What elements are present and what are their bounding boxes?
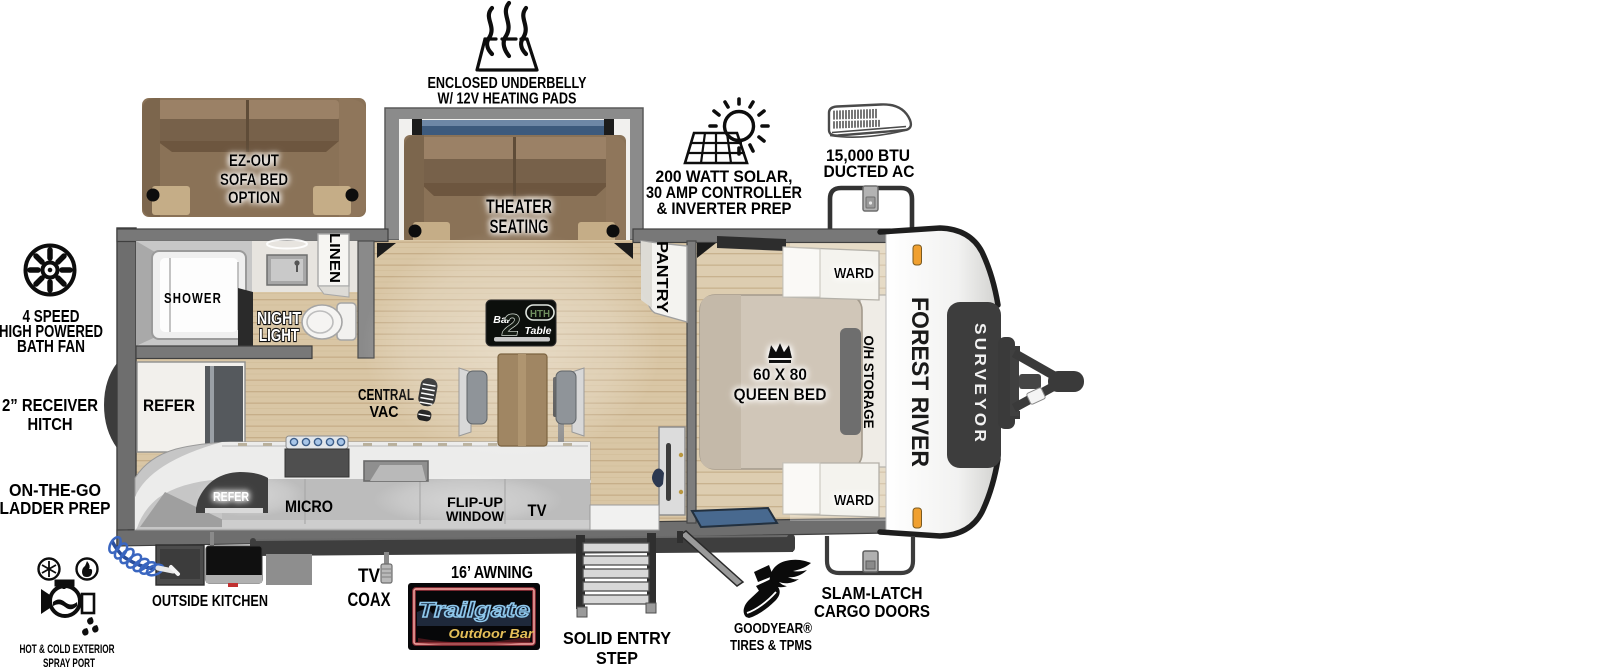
svg-text:Trailgate: Trailgate — [418, 599, 530, 622]
svg-text:HTH: HTH — [530, 309, 550, 320]
svg-text:OUTSIDE KITCHEN: OUTSIDE KITCHEN — [152, 593, 268, 610]
svg-text:Outdoor Bar: Outdoor Bar — [449, 626, 535, 641]
svg-text:EZ-OUT: EZ-OUT — [229, 151, 279, 170]
svg-text:SOLID ENTRY: SOLID ENTRY — [563, 628, 671, 648]
svg-text:ENCLOSED UNDERBELLY: ENCLOSED UNDERBELLY — [428, 75, 588, 92]
svg-text:LADDER PREP: LADDER PREP — [0, 498, 111, 518]
svg-text:QUEEN BED: QUEEN BED — [734, 386, 827, 404]
svg-text:REFER: REFER — [143, 396, 195, 415]
svg-text:SHOWER: SHOWER — [164, 290, 222, 307]
svg-text:COAX: COAX — [348, 590, 391, 611]
svg-text:PANTRY: PANTRY — [653, 241, 670, 314]
svg-text:2” RECEIVER: 2” RECEIVER — [2, 395, 98, 415]
svg-text:SPRAY PORT: SPRAY PORT — [43, 656, 95, 670]
svg-text:SLAM-LATCH: SLAM-LATCH — [822, 583, 923, 603]
svg-text:OPTION: OPTION — [228, 188, 280, 207]
svg-text:WARD: WARD — [834, 266, 874, 282]
svg-text:TV: TV — [528, 501, 548, 520]
svg-text:O/H STORAGE: O/H STORAGE — [861, 336, 877, 429]
svg-text:FLIP-UP: FLIP-UP — [447, 495, 503, 510]
svg-text:REFER: REFER — [213, 489, 249, 504]
svg-text:& INVERTER PREP: & INVERTER PREP — [657, 199, 792, 218]
svg-text:LINEN: LINEN — [326, 233, 343, 283]
svg-text:STEP: STEP — [596, 648, 638, 668]
svg-text:60 X 80: 60 X 80 — [753, 366, 807, 384]
svg-text:CARGO DOORS: CARGO DOORS — [814, 601, 930, 621]
svg-text:HOT & COLD EXTERIOR: HOT & COLD EXTERIOR — [20, 642, 115, 656]
svg-text:TV: TV — [358, 566, 380, 587]
svg-text:GOODYEAR®: GOODYEAR® — [734, 621, 812, 637]
svg-text:WINDOW: WINDOW — [446, 509, 504, 524]
svg-text:HITCH: HITCH — [28, 414, 73, 434]
svg-text:BATH FAN: BATH FAN — [17, 336, 85, 356]
svg-text:DUCTED AC: DUCTED AC — [824, 162, 915, 181]
svg-text:SOFA BED: SOFA BED — [220, 170, 288, 189]
svg-text:SURVEYOR: SURVEYOR — [971, 323, 988, 445]
svg-text:FOREST RIVER: FOREST RIVER — [906, 297, 933, 467]
svg-text:WARD: WARD — [834, 493, 874, 509]
svg-text:LIGHT: LIGHT — [259, 325, 299, 345]
svg-text:16’ AWNING: 16’ AWNING — [451, 562, 533, 582]
svg-text:ON-THE-GO: ON-THE-GO — [9, 480, 101, 500]
svg-text:Table: Table — [524, 325, 551, 337]
svg-text:TIRES & TPMS: TIRES & TPMS — [730, 638, 812, 654]
svg-text:THEATER: THEATER — [486, 197, 552, 218]
svg-text:W/ 12V HEATING PADS: W/ 12V HEATING PADS — [438, 91, 577, 108]
svg-text:MICRO: MICRO — [285, 497, 333, 516]
